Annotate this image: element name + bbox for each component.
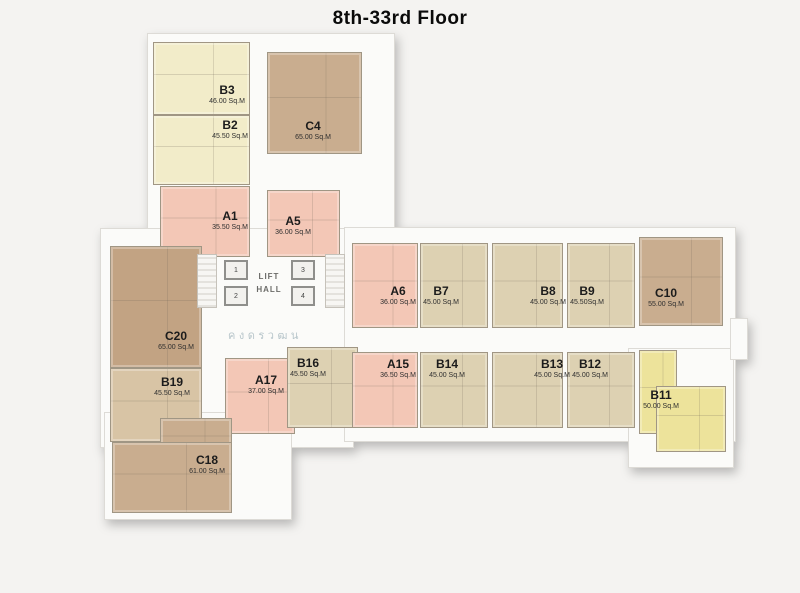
unit-c18-region[interactable] (112, 442, 232, 513)
unit-c10-region[interactable] (639, 237, 723, 326)
lift-1-number: 1 (234, 267, 238, 274)
unit-c4-region[interactable] (267, 52, 362, 154)
unit-b13-region[interactable] (492, 352, 563, 428)
floor-plan: 1 2 3 4 LIFT HALL ค ง ด ร ว ฒ น B346.00 … (0, 0, 800, 593)
unit-a5-region[interactable] (267, 190, 340, 257)
unit-a6-region[interactable] (352, 243, 418, 328)
unit-b7-region[interactable] (420, 243, 488, 328)
lift-3-number: 3 (301, 267, 305, 274)
unit-a15-region[interactable] (352, 352, 418, 428)
unit-b12-region[interactable] (567, 352, 635, 428)
lift-hall-label: LIFT HALL (256, 271, 281, 297)
unit-b14-region[interactable] (420, 352, 488, 428)
stairs-right (325, 254, 345, 308)
footprint-corridor-bump (730, 318, 748, 360)
unit-b8-region[interactable] (492, 243, 563, 328)
lift-1: 1 (224, 260, 248, 280)
floor-plan-page: 8th-33rd Floor 1 2 (0, 0, 800, 593)
unit-c20-region[interactable] (110, 246, 202, 368)
lift-3: 3 (291, 260, 315, 280)
unit-b9-region[interactable] (567, 243, 635, 328)
lift-2: 2 (224, 286, 248, 306)
unit-b3-region[interactable] (153, 42, 250, 115)
lift-2-number: 2 (234, 293, 238, 300)
lift-4: 4 (291, 286, 315, 306)
corridor-watermark: ค ง ด ร ว ฒ น (228, 326, 698, 344)
lift-hall-line1: LIFT (256, 271, 281, 284)
unit-b16-region[interactable] (287, 347, 358, 428)
unit-b11-region[interactable] (656, 386, 726, 452)
lift-4-number: 4 (301, 293, 305, 300)
unit-b2-region[interactable] (153, 115, 250, 185)
stairs-left (197, 254, 217, 308)
lift-hall-line2: HALL (256, 284, 281, 297)
unit-a17-region[interactable] (225, 358, 295, 434)
